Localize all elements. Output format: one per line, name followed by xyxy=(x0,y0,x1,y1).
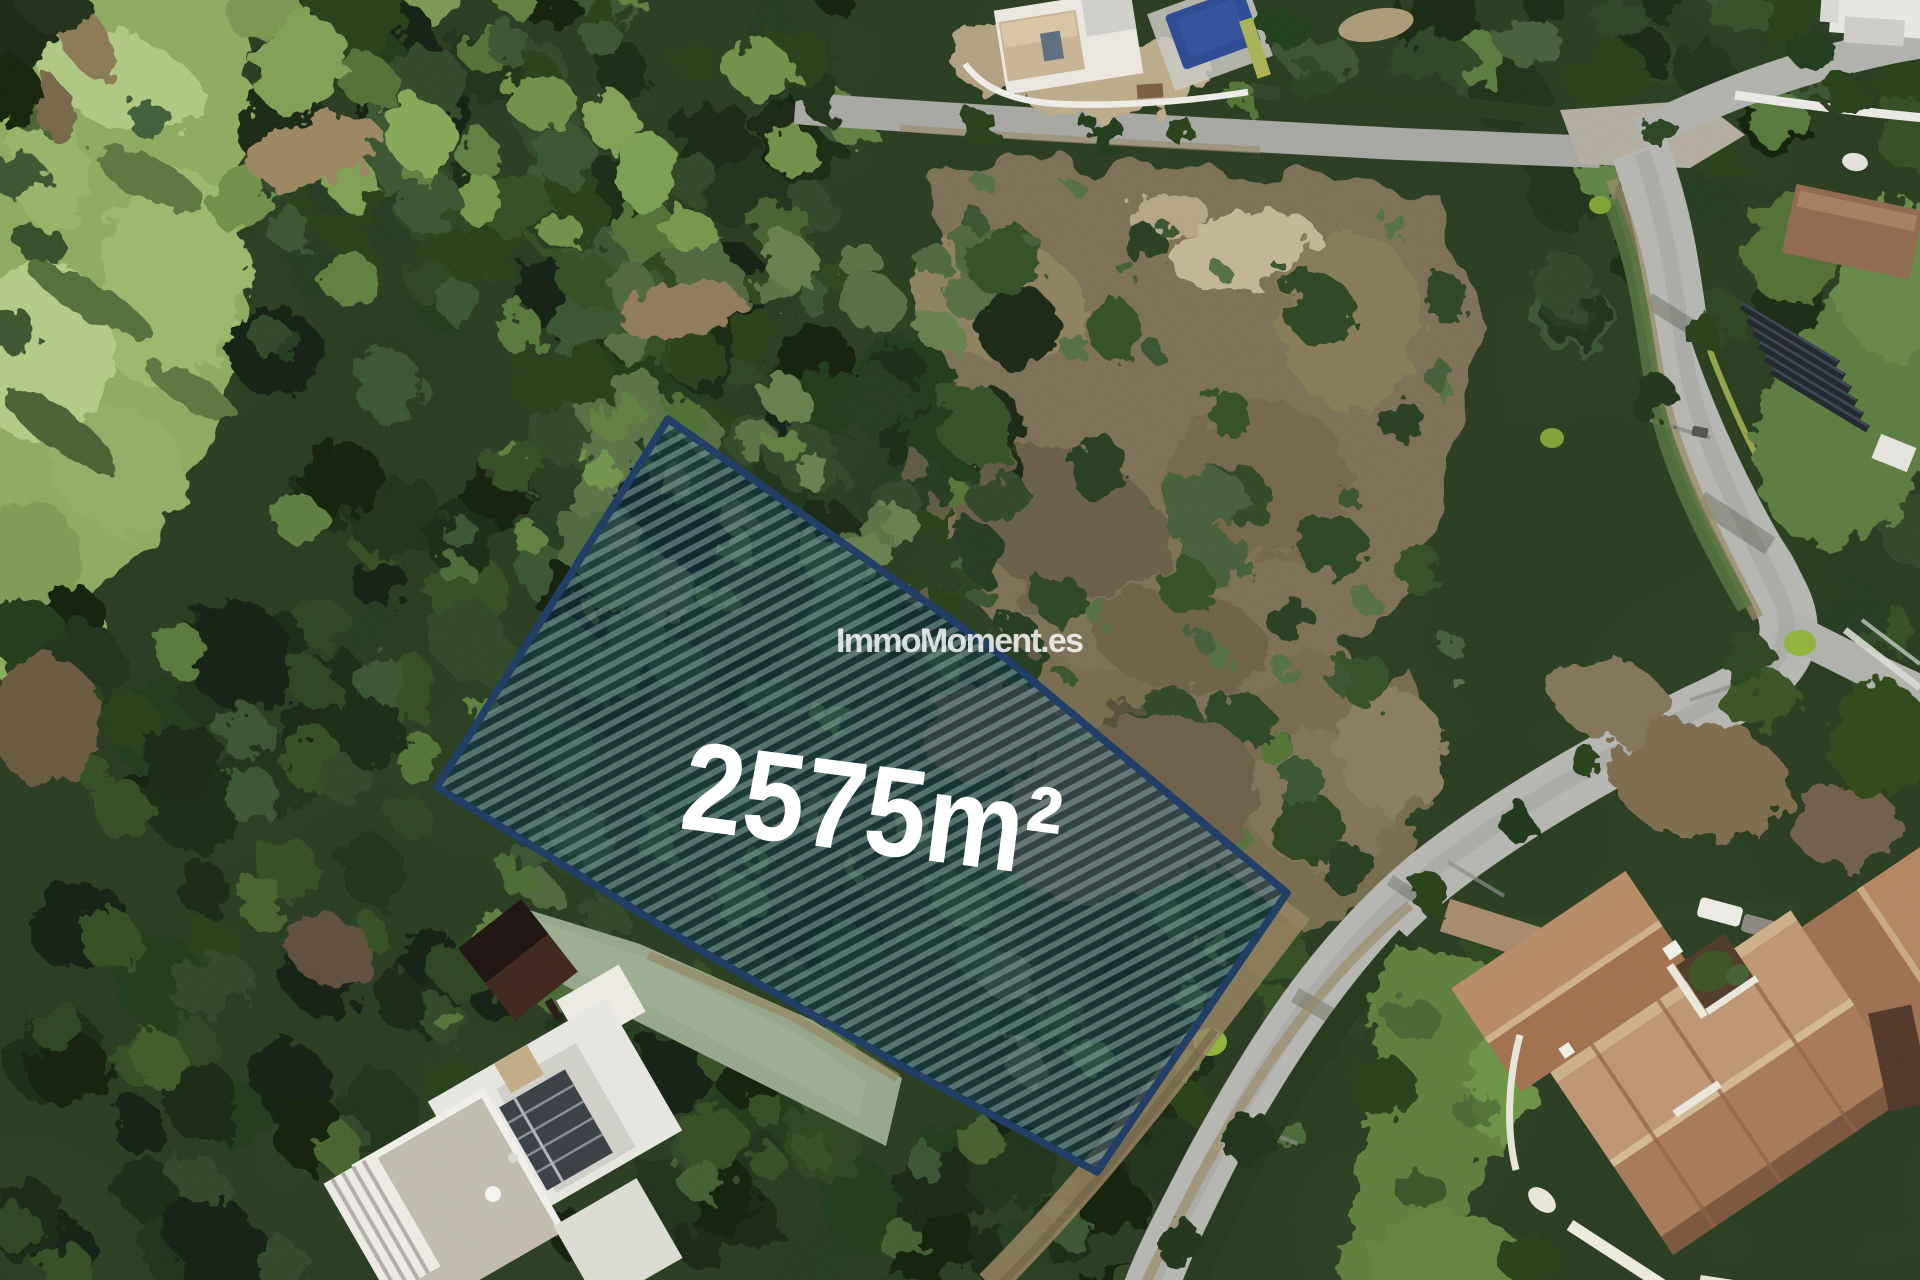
svg-text:ImmoMoment.es: ImmoMoment.es xyxy=(836,622,1084,660)
